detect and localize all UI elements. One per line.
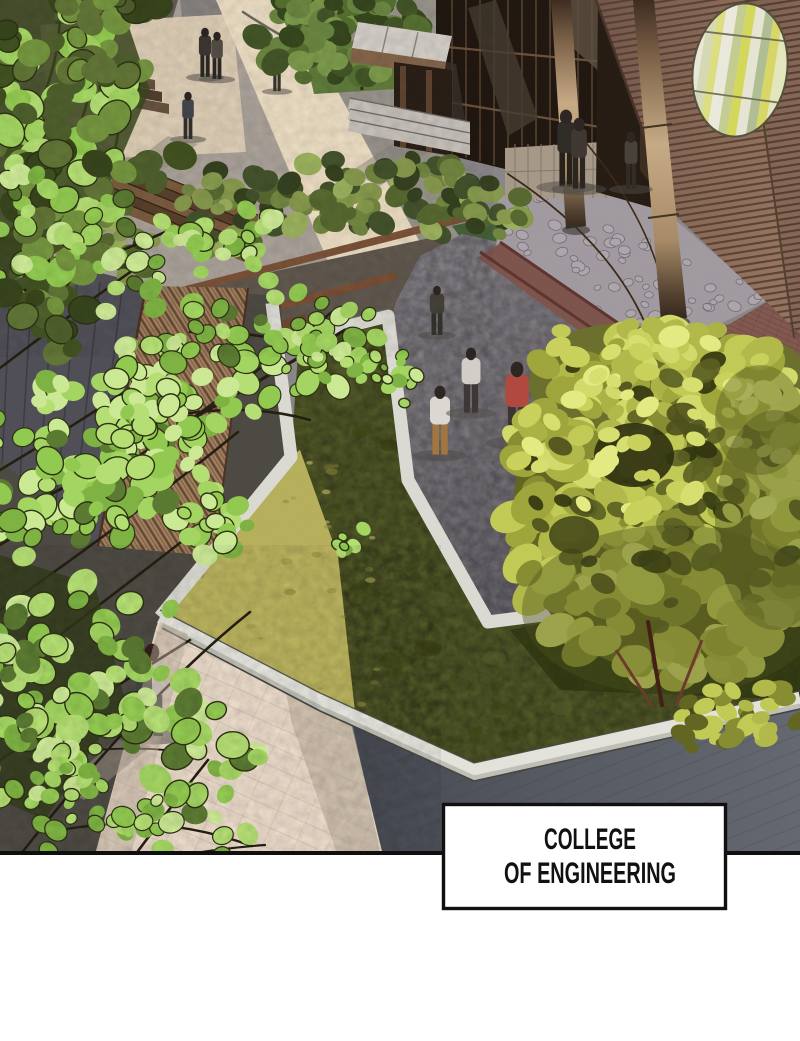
- svg-text:COLLEGE: COLLEGE: [544, 823, 636, 856]
- svg-text:OF ENGINEERING: OF ENGINEERING: [504, 857, 676, 890]
